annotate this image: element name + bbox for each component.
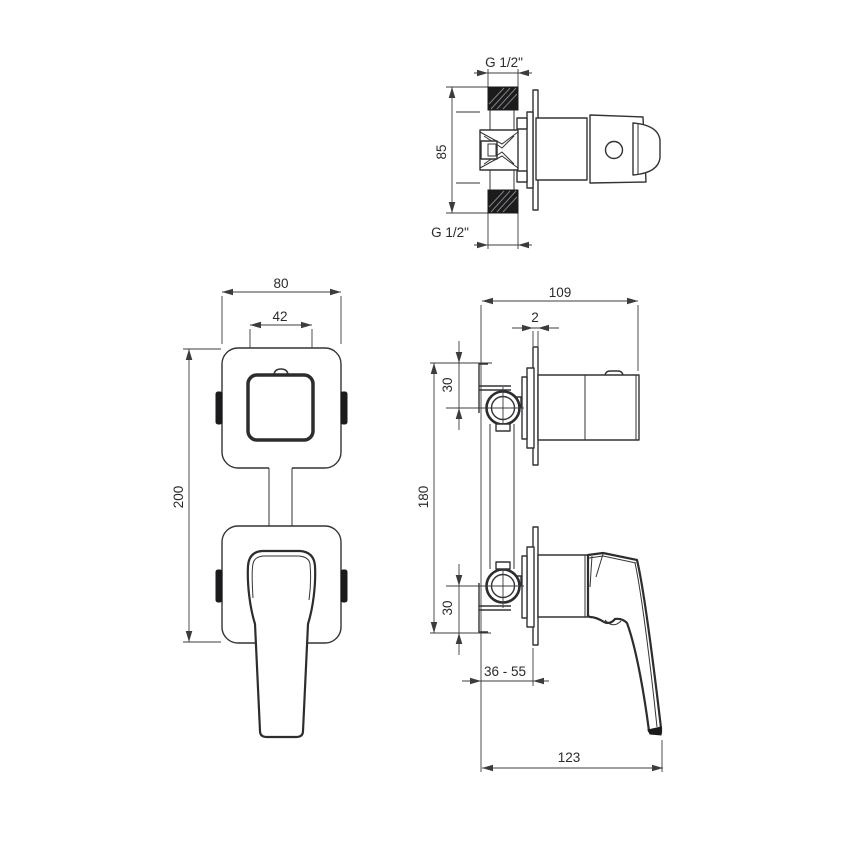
- top-view: G 1/2" 85 G 1/2": [431, 55, 660, 249]
- arrowhead: [449, 202, 456, 213]
- extension-line: [488, 69, 518, 87]
- arrowhead: [456, 408, 463, 419]
- arrowhead: [627, 298, 638, 305]
- column-fill: [269, 467, 292, 527]
- arrowhead: [301, 322, 312, 329]
- arrowhead: [518, 242, 529, 249]
- clamp-foot-lower: [496, 562, 510, 569]
- front-view: 80 42 200: [171, 276, 347, 737]
- flange-sleeve: [527, 112, 533, 188]
- arrowhead: [482, 765, 493, 772]
- arrowhead: [518, 70, 529, 77]
- riser-pipes: [490, 424, 514, 569]
- arrowhead: [456, 633, 463, 644]
- technical-drawing-page: G 1/2" 85 G 1/2": [0, 0, 854, 855]
- mount-tab-right-upper: [341, 392, 347, 424]
- arrowhead: [652, 765, 663, 772]
- arrowhead: [330, 289, 341, 296]
- dim-label-handle-reach: 123: [558, 750, 581, 765]
- arrowhead: [533, 678, 544, 685]
- diverter-plate: [248, 375, 313, 440]
- arrowhead: [456, 352, 463, 363]
- flange-lower-inner: [522, 556, 527, 618]
- arrowhead: [186, 631, 193, 642]
- arrowhead: [482, 298, 493, 305]
- extension-line: [488, 213, 518, 249]
- dim-label-plate-thickness: 2: [531, 310, 539, 325]
- body-edge-lines: [456, 112, 480, 183]
- lever-handle-side: [588, 553, 661, 733]
- arrowhead: [431, 622, 438, 633]
- arrowhead: [477, 242, 488, 249]
- dim-label-trim-width: 80: [273, 276, 288, 291]
- side-view: 109 2 30 180 30: [416, 285, 663, 772]
- dim-label-thread-bottom: G 1/2": [431, 225, 469, 240]
- arrowhead: [538, 325, 549, 332]
- arrowhead: [449, 87, 456, 98]
- extension-line: [533, 331, 538, 346]
- flange-tab-top: [517, 118, 527, 129]
- mount-tab-right-lower: [341, 570, 347, 602]
- arrowhead: [522, 325, 533, 332]
- dim-label-offset-top: 30: [440, 377, 455, 392]
- clamp-foot-upper: [496, 424, 510, 431]
- flange-upper-outer: [527, 368, 534, 448]
- arrowhead: [250, 322, 261, 329]
- control-knob: [633, 123, 660, 175]
- arrowhead: [186, 349, 193, 360]
- mount-tab-left-lower: [216, 570, 222, 602]
- dim-label-offset-bottom: 30: [440, 600, 455, 615]
- dim-label-pipe-length: 85: [434, 144, 449, 159]
- cartridge-body-upper: [538, 375, 639, 440]
- lever-handle-front: [248, 551, 315, 737]
- arrowhead: [431, 363, 438, 374]
- arrowhead: [456, 575, 463, 586]
- mixer-technical-drawing: G 1/2" 85 G 1/2": [0, 0, 854, 855]
- dim-label-install-depth: 36 - 55: [484, 664, 526, 679]
- dim-label-total-height: 200: [171, 486, 186, 509]
- flange-tab-bottom: [517, 171, 527, 182]
- dim-label-thread-top: G 1/2": [485, 55, 523, 70]
- arrowhead: [222, 289, 233, 296]
- flange-lower-outer: [527, 547, 534, 627]
- mount-tab-left-upper: [216, 392, 222, 424]
- mixer-body-lower: [538, 555, 588, 617]
- dim-label-valve-spacing: 180: [416, 486, 431, 509]
- arrowhead: [477, 70, 488, 77]
- cartridge-body: [536, 118, 587, 180]
- dim-label-body-depth: 109: [549, 285, 572, 300]
- arrowhead: [470, 678, 481, 685]
- dim-label-handle-base-width: 42: [272, 309, 287, 324]
